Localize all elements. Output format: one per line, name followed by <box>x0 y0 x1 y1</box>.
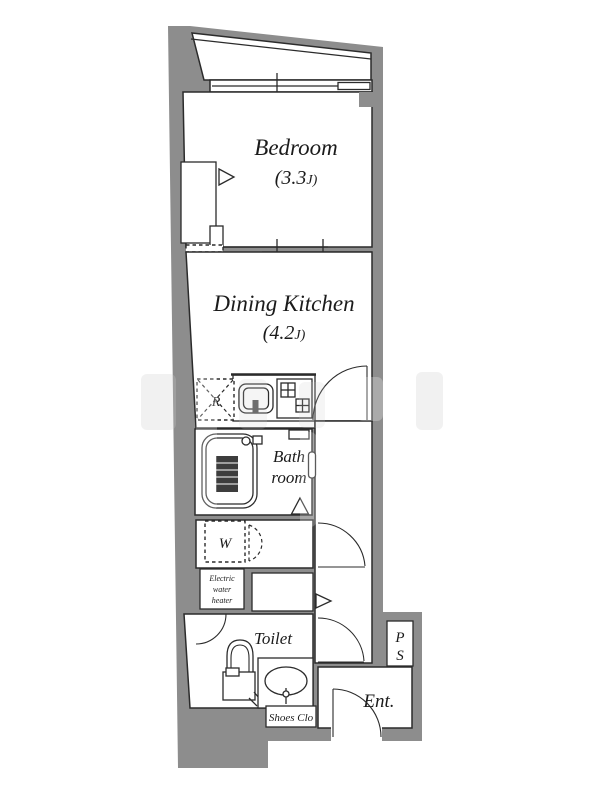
pipe-space: P S <box>387 621 413 666</box>
toilet-label: Toilet <box>254 629 293 648</box>
entrance-door-opening <box>331 727 382 741</box>
partition-dotted-sill <box>186 245 223 252</box>
hallway-floor <box>315 421 372 663</box>
water-heater-line3: heater <box>212 596 233 605</box>
dk-label: Dining Kitchen <box>212 291 354 316</box>
utility-row: Electric water heater <box>200 569 331 611</box>
hall-closet <box>252 573 313 611</box>
bath-mixer <box>253 436 262 444</box>
pipe-space-label-s: S <box>396 648 404 664</box>
partition-pillar <box>210 226 223 246</box>
bath-faucet <box>242 437 250 445</box>
washer-label: W <box>219 536 233 552</box>
stove-burner-1 <box>281 383 295 397</box>
floor-plan: Bedroom (3.3J) Dining Kitchen (4.2J) R <box>0 0 600 800</box>
wash-basin <box>258 658 313 708</box>
bathtub-jet-panel <box>216 456 238 492</box>
shoes-closet-label: Shoes Clo <box>269 712 314 724</box>
water-heater-line2: water <box>213 585 232 594</box>
water-heater-line1: Electric <box>208 574 235 583</box>
floor-plan-drawing: Bedroom (3.3J) Dining Kitchen (4.2J) R <box>0 0 600 800</box>
wall-notch <box>359 92 383 107</box>
toilet-room: Toilet <box>184 614 313 708</box>
pipe-space-label-p: P <box>394 630 404 646</box>
bedroom-room: Bedroom (3.3J) <box>181 92 383 247</box>
bedroom-label: Bedroom <box>254 135 337 160</box>
entrance-label: Ent. <box>362 691 394 712</box>
window-sash <box>338 83 370 90</box>
